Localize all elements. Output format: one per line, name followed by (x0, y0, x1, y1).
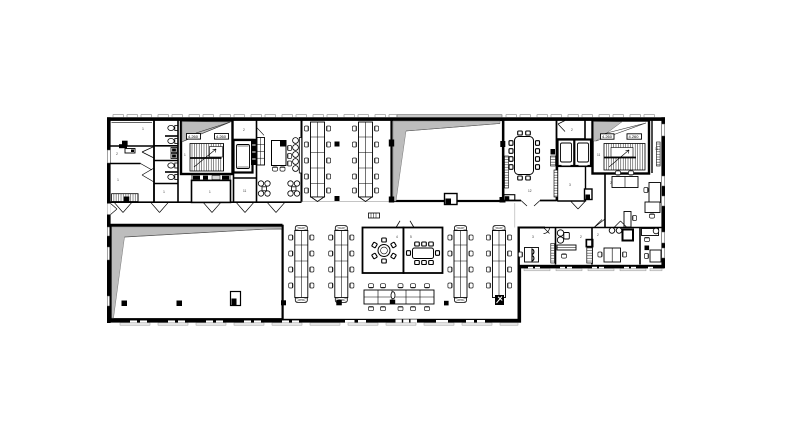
svg-text:2: 2 (243, 128, 245, 132)
svg-text:2: 2 (580, 235, 582, 239)
svg-text:5: 5 (410, 235, 412, 239)
svg-text:4: 4 (396, 235, 398, 239)
svg-text:11: 11 (243, 189, 247, 193)
svg-text:4.260: 4.260 (216, 134, 227, 139)
svg-text:2: 2 (597, 233, 599, 237)
svg-text:1: 1 (209, 190, 211, 194)
svg-text:11: 11 (655, 147, 659, 151)
svg-text:2: 2 (116, 152, 118, 156)
svg-text:3: 3 (569, 183, 571, 187)
svg-text:1: 1 (142, 127, 144, 131)
svg-text:2: 2 (571, 128, 573, 132)
svg-text:4.260: 4.260 (188, 134, 199, 139)
svg-text:11: 11 (597, 153, 601, 157)
svg-text:1: 1 (184, 153, 186, 157)
svg-text:4.260: 4.260 (602, 134, 613, 139)
svg-text:1: 1 (163, 190, 165, 194)
svg-text:12: 12 (528, 189, 532, 193)
svg-text:4.260: 4.260 (629, 134, 640, 139)
svg-text:3: 3 (532, 235, 534, 239)
svg-text:1: 1 (117, 178, 119, 182)
svg-text:2: 2 (610, 181, 612, 185)
